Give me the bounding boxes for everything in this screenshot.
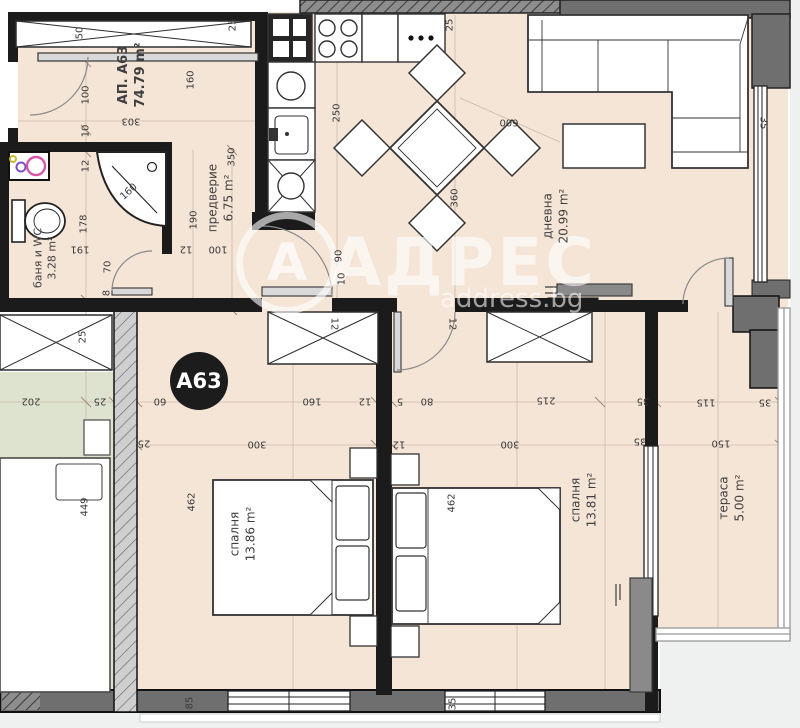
bedroom2-door-leaf xyxy=(394,312,401,372)
nightstand xyxy=(391,626,419,657)
nightstand xyxy=(84,420,110,455)
terrace-door-leaf xyxy=(725,258,733,306)
nightstand xyxy=(391,454,419,485)
apartment-badge: А63 xyxy=(170,352,228,410)
floor-plan: А АДРЕС address.bg 502510016030310121781… xyxy=(0,0,800,728)
neighbor-furniture xyxy=(0,420,110,692)
pillow xyxy=(336,546,369,600)
toilet-bowl xyxy=(25,203,65,239)
toilet-tank xyxy=(12,200,25,242)
radiator xyxy=(630,578,652,692)
pillow xyxy=(396,493,426,548)
pillow xyxy=(56,464,102,500)
nightstand xyxy=(350,616,377,646)
pillow xyxy=(396,556,426,611)
pillow xyxy=(336,486,369,540)
entrance-door-leaf xyxy=(38,53,258,61)
nightstand xyxy=(350,448,377,478)
radiator xyxy=(557,284,632,296)
coffee-table xyxy=(563,124,645,168)
plan-geometry xyxy=(0,0,800,728)
bathroom-door-leaf xyxy=(112,288,152,295)
bedroom1-door-leaf xyxy=(262,287,332,296)
